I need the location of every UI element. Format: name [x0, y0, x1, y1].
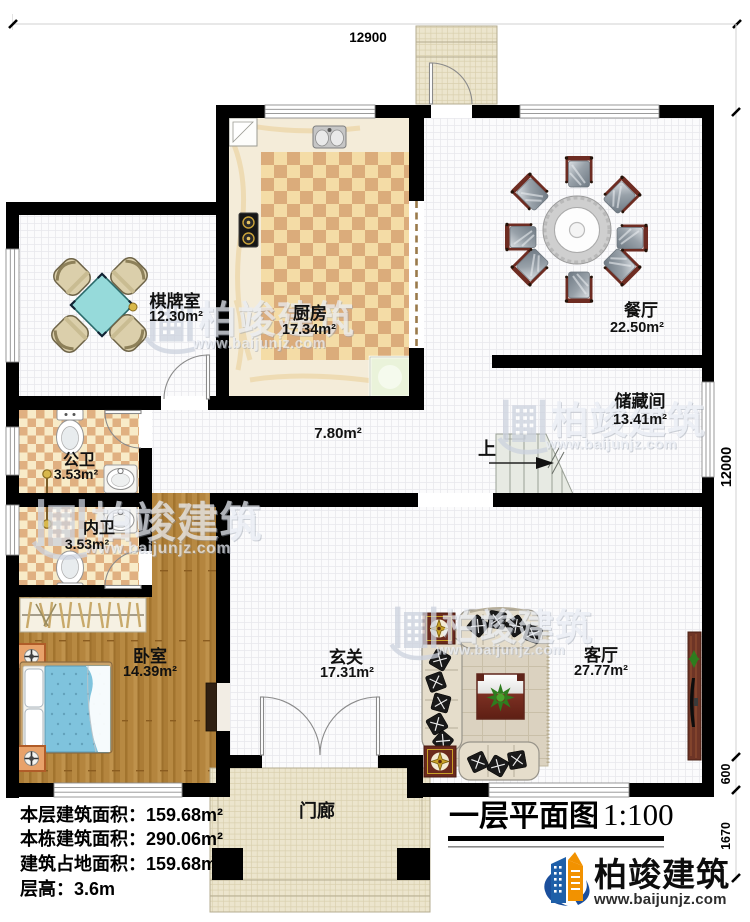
svg-text:内卫: 内卫 [83, 518, 115, 537]
svg-text:本层建筑面积：159.68m²: 本层建筑面积：159.68m² [20, 804, 223, 825]
svg-text:1670: 1670 [719, 822, 733, 850]
svg-text:柏竣建筑: 柏竣建筑 [594, 856, 730, 893]
svg-text:13.41m²: 13.41m² [613, 412, 667, 428]
svg-text:一层平面图: 一层平面图 [449, 800, 599, 833]
svg-text:餐厅: 餐厅 [624, 300, 658, 320]
svg-text:www.baijunjz.com: www.baijunjz.com [593, 891, 727, 908]
svg-text:本栋建筑面积：290.06m²: 本栋建筑面积：290.06m² [20, 828, 223, 849]
svg-text:3.53m²: 3.53m² [54, 466, 99, 482]
svg-text:27.77m²: 27.77m² [574, 663, 628, 679]
svg-text:12900: 12900 [349, 30, 387, 45]
svg-text:棋牌室: 棋牌室 [150, 291, 201, 311]
svg-text:门廊: 门廊 [299, 800, 335, 821]
svg-text:12.30m²: 12.30m² [149, 309, 203, 325]
svg-text:卧室: 卧室 [133, 646, 167, 666]
svg-text:17.31m²: 17.31m² [320, 665, 374, 681]
svg-text:上: 上 [478, 439, 496, 459]
svg-text:层高：3.6m: 层高：3.6m [20, 878, 115, 899]
svg-text:14.39m²: 14.39m² [123, 664, 177, 680]
svg-text:1:100: 1:100 [603, 797, 674, 832]
svg-text:22.50m²: 22.50m² [610, 320, 664, 336]
svg-text:客厅: 客厅 [583, 645, 618, 665]
svg-text:厨房: 厨房 [293, 303, 327, 323]
svg-text:建筑占地面积：159.68m²: 建筑占地面积：159.68m² [20, 853, 223, 874]
svg-text:3.53m²: 3.53m² [65, 536, 110, 552]
svg-text:7.80m²: 7.80m² [314, 425, 362, 442]
svg-text:储藏间: 储藏间 [615, 391, 666, 411]
svg-text:玄关: 玄关 [329, 647, 363, 667]
svg-text:17.34m²: 17.34m² [282, 322, 336, 338]
svg-text:600: 600 [719, 764, 733, 785]
svg-text:12000: 12000 [719, 447, 735, 487]
